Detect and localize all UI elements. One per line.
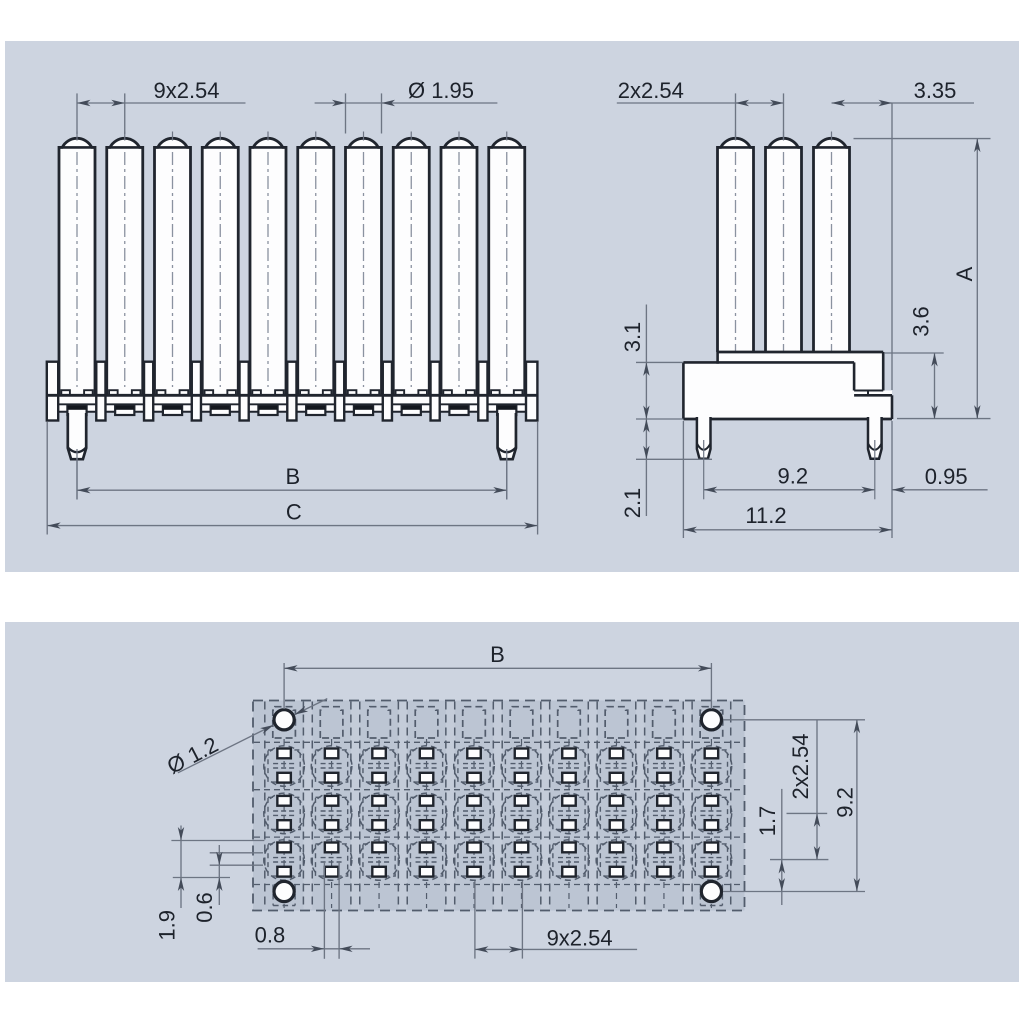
svg-text:11.2: 11.2	[745, 503, 786, 528]
svg-text:B: B	[490, 642, 505, 667]
svg-text:1.9: 1.9	[155, 910, 180, 941]
svg-text:9x2.54: 9x2.54	[153, 78, 219, 103]
svg-text:2.1: 2.1	[620, 488, 645, 519]
svg-text:0.6: 0.6	[192, 892, 217, 923]
svg-text:1.7: 1.7	[755, 806, 780, 837]
svg-text:3.6: 3.6	[909, 306, 934, 337]
svg-text:0.95: 0.95	[925, 464, 968, 489]
svg-text:9x2.54: 9x2.54	[547, 926, 613, 951]
svg-text:3.1: 3.1	[620, 322, 645, 353]
svg-text:Ø 1.95: Ø 1.95	[408, 78, 474, 103]
svg-text:3.35: 3.35	[914, 78, 957, 103]
svg-text:C: C	[286, 500, 302, 525]
svg-text:2x2.54: 2x2.54	[788, 733, 813, 799]
svg-text:B: B	[285, 464, 300, 489]
svg-text:A: A	[952, 266, 977, 281]
svg-text:9.2: 9.2	[778, 464, 809, 489]
svg-text:0.8: 0.8	[255, 923, 286, 948]
svg-text:2x2.54: 2x2.54	[618, 78, 684, 103]
svg-text:9.2: 9.2	[832, 787, 857, 818]
